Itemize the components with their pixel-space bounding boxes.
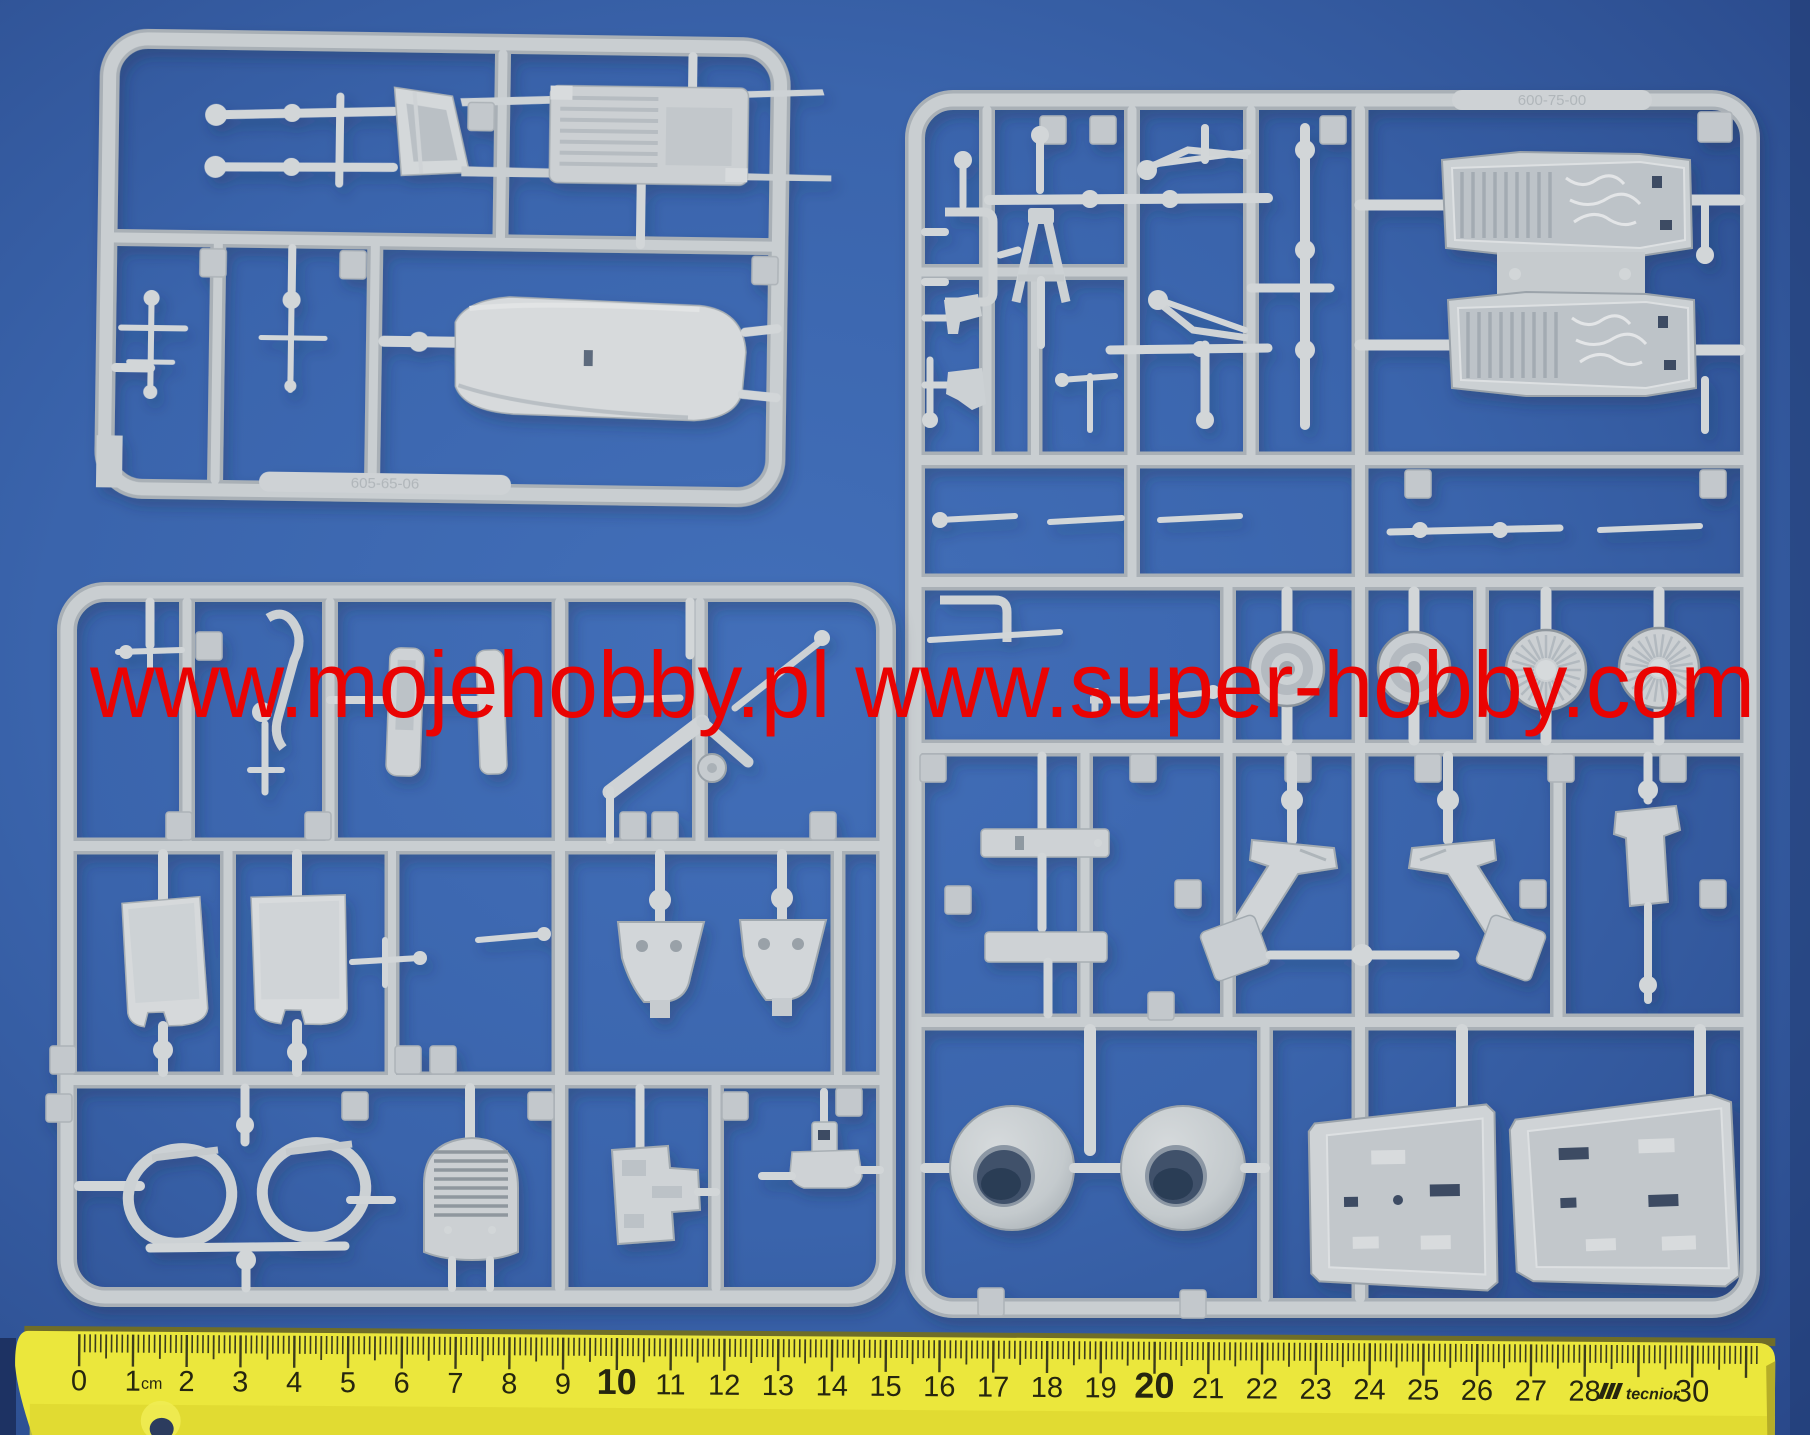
- svg-text:25: 25: [1407, 1375, 1439, 1407]
- svg-text:11: 11: [655, 1369, 685, 1401]
- svg-text:12: 12: [708, 1370, 740, 1402]
- svg-text:26: 26: [1461, 1375, 1493, 1407]
- svg-text:24: 24: [1353, 1374, 1385, 1406]
- svg-text:3: 3: [232, 1366, 248, 1398]
- svg-text:17: 17: [977, 1372, 1009, 1404]
- svg-text:2: 2: [178, 1366, 194, 1398]
- svg-text:tecnior: tecnior: [1626, 1386, 1680, 1403]
- svg-text:16: 16: [923, 1371, 955, 1403]
- svg-text:5: 5: [340, 1367, 356, 1399]
- svg-text:20: 20: [1134, 1365, 1174, 1406]
- svg-text:22: 22: [1246, 1373, 1278, 1405]
- svg-text:14: 14: [816, 1370, 848, 1402]
- svg-text:www.mojehobby.pl www.super-hob: www.mojehobby.pl www.super-hobby.com: [89, 632, 1755, 737]
- svg-text:7: 7: [447, 1368, 463, 1400]
- svg-text:13: 13: [762, 1370, 794, 1402]
- svg-text:605-65-06: 605-65-06: [351, 475, 420, 493]
- svg-text:6: 6: [393, 1367, 409, 1399]
- svg-text:1: 1: [125, 1366, 141, 1398]
- svg-text:4: 4: [286, 1367, 302, 1399]
- svg-text:19: 19: [1084, 1372, 1116, 1404]
- svg-text:18: 18: [1031, 1372, 1063, 1404]
- svg-text:21: 21: [1192, 1373, 1224, 1405]
- svg-text:27: 27: [1515, 1375, 1547, 1407]
- svg-text:8: 8: [501, 1368, 517, 1400]
- svg-text:600-75-00: 600-75-00: [1518, 92, 1586, 109]
- svg-text:9: 9: [555, 1369, 571, 1401]
- svg-text:30: 30: [1675, 1373, 1710, 1408]
- svg-text:15: 15: [869, 1371, 901, 1403]
- svg-text:0: 0: [71, 1365, 87, 1397]
- svg-text:cm: cm: [141, 1376, 162, 1393]
- svg-text:28: 28: [1568, 1376, 1600, 1408]
- svg-text:10: 10: [597, 1361, 637, 1402]
- svg-text:23: 23: [1299, 1374, 1331, 1406]
